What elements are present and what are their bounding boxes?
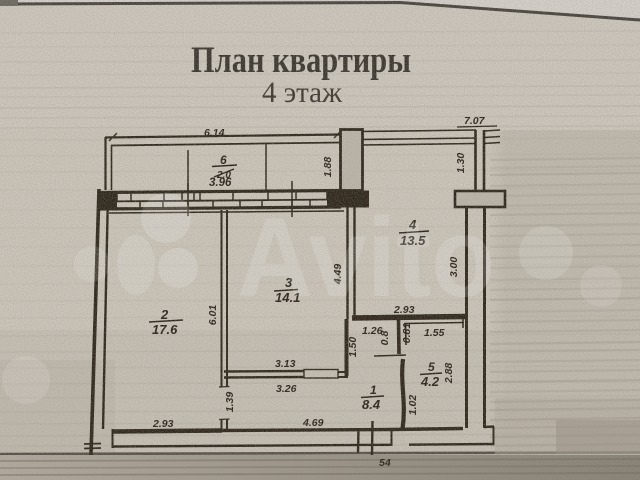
svg-text:Avito: Avito bbox=[237, 195, 495, 320]
